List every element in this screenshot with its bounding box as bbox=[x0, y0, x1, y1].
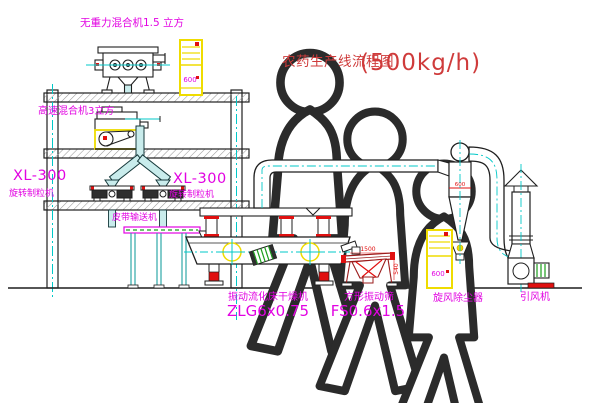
label-granulator-left-name: 旋转制粒机 bbox=[9, 187, 54, 199]
rotary-granulator-left bbox=[90, 186, 134, 201]
process-flow-diagram: 600 bbox=[0, 0, 600, 403]
label-granulator-right-model: XL-300 bbox=[173, 171, 227, 187]
label-gravity-free-mixer: 无重力混合机1.5 立方 bbox=[80, 16, 184, 29]
page-title-capacity: (500kg/h) bbox=[360, 50, 481, 76]
person-figure-ground bbox=[588, 246, 600, 403]
cad-drawing-canvas: 600 bbox=[0, 0, 600, 403]
label-high-speed-mixer: 高速混合机3立方 bbox=[38, 104, 114, 117]
label-fluid-bed-model: ZLG6x0.75 bbox=[227, 302, 309, 320]
cabinet-top-value: 600 bbox=[183, 76, 196, 84]
label-fan: 引风机 bbox=[520, 290, 550, 303]
cabinet-bottom-value: 600 bbox=[431, 270, 444, 278]
label-granulator-right-name: 旋转制粒机 bbox=[169, 188, 214, 200]
control-cabinet-top: 600 bbox=[180, 40, 202, 95]
control-cabinet-bottom: 600 bbox=[427, 230, 452, 288]
induced-draft-fan bbox=[508, 258, 554, 288]
fluid-bed-dryer bbox=[184, 208, 352, 285]
label-belt-conveyor: 皮带输送机 bbox=[112, 211, 157, 223]
label-granulator-left-model: XL-300 bbox=[13, 168, 67, 184]
spring-mount-left bbox=[205, 264, 223, 285]
sieve-height-dim: 540 bbox=[393, 263, 400, 275]
gravity-free-mixer bbox=[95, 47, 165, 93]
label-cyclone: 旋风除尘器 bbox=[433, 291, 483, 304]
label-sieve-model: FS0.6x1.5 bbox=[331, 302, 405, 320]
sieve-width-dim: 1500 bbox=[360, 246, 375, 253]
